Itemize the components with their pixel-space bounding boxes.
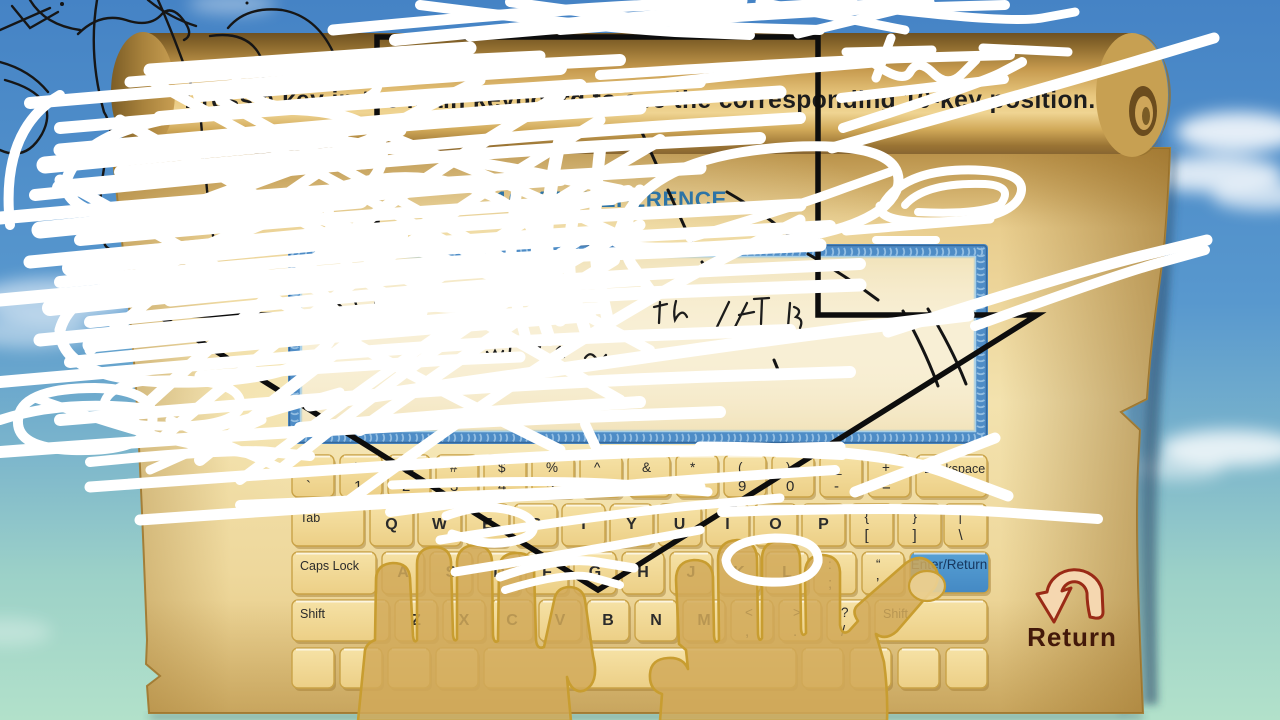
- svg-text:?: ?: [841, 605, 849, 620]
- svg-text:Caps Lock: Caps Lock: [300, 559, 360, 573]
- svg-text:P: P: [818, 516, 829, 533]
- svg-text:`: `: [306, 478, 311, 495]
- svg-text:-: -: [834, 478, 839, 495]
- svg-text:]: ]: [913, 527, 917, 544]
- svg-text:0: 0: [786, 478, 794, 495]
- svg-text:Y: Y: [626, 516, 637, 533]
- svg-text:*: *: [690, 460, 696, 475]
- svg-text:I: I: [725, 516, 729, 533]
- svg-text:Q: Q: [385, 516, 397, 533]
- svg-text:“: “: [876, 557, 881, 572]
- svg-text:&: &: [642, 460, 651, 475]
- svg-text:Shift: Shift: [300, 607, 326, 621]
- svg-text:^: ^: [594, 460, 601, 475]
- svg-text:B: B: [602, 612, 614, 629]
- svg-text:N: N: [650, 612, 662, 629]
- svg-text:Return: Return: [1027, 622, 1117, 652]
- svg-text:O: O: [769, 516, 781, 533]
- svg-text:%: %: [546, 460, 558, 475]
